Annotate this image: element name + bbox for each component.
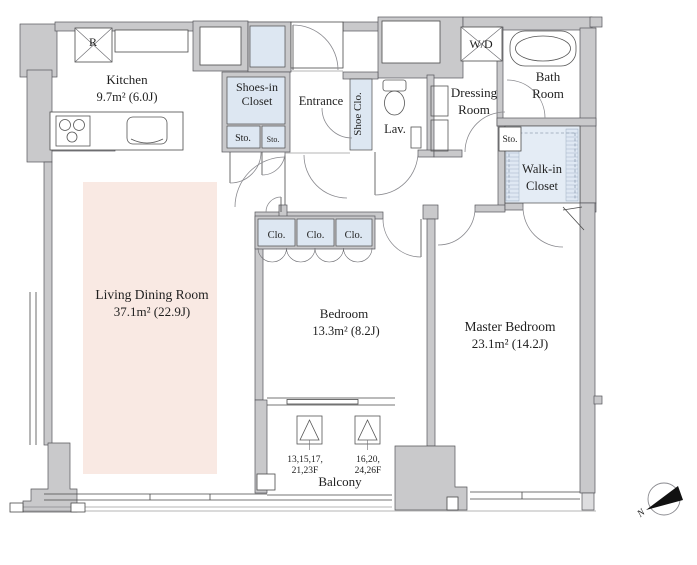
kitchen-label: Kitchen <box>106 72 148 87</box>
hatch-floors-label: 16,20, <box>356 455 380 465</box>
hatch-floors-label: 13,15,17, <box>287 455 323 465</box>
storage-label: Sto. <box>267 135 280 144</box>
storage-label: Sto. <box>235 133 251 144</box>
kitchen-cabinet <box>115 30 188 52</box>
pipe-shaft <box>382 21 440 63</box>
walk-in-closet-label: Closet <box>526 179 558 193</box>
floor-plan-page: N R Kitchen 9.7m² (6.0J) Shoes-in Closet… <box>0 0 697 565</box>
floor-plan: N R Kitchen 9.7m² (6.0J) Shoes-in Closet… <box>0 0 697 565</box>
washer-dryer-label: W/D <box>469 37 493 51</box>
living-dining-label: Living Dining Room <box>95 287 209 302</box>
walk-in-closet-shelf <box>566 129 578 201</box>
rail-post <box>447 497 458 510</box>
bath-label: Bath <box>536 69 561 84</box>
balcony-equipment <box>257 474 275 490</box>
bedroom-window-sash <box>287 400 358 405</box>
balcony-label: Balcony <box>318 474 362 489</box>
closet-label: Clo. <box>345 230 363 241</box>
rail-post <box>71 503 85 512</box>
closet-label: Clo. <box>307 230 325 241</box>
storage-top <box>250 26 285 67</box>
bedroom-label: Bedroom <box>320 306 368 321</box>
living-dining-floor-highlight <box>83 182 217 474</box>
dressing-label: Dressing <box>451 85 498 100</box>
bedroom-area: 13.3m² (8.2J) <box>312 324 379 338</box>
walk-in-closet-label: Walk-in <box>522 162 563 176</box>
kitchen-area: 9.7m² (6.0J) <box>96 90 157 104</box>
lavatory-label: Lav. <box>384 122 406 136</box>
master-bedroom-label: Master Bedroom <box>464 319 556 334</box>
shoes-in-closet-label: Shoes-in <box>236 80 278 94</box>
refrigerator-label: R <box>89 35 97 49</box>
hatch-floors-label: 21,23F <box>292 466 319 476</box>
entry-alcove <box>291 22 343 68</box>
entrance-label: Entrance <box>299 94 344 108</box>
kitchen-counter <box>50 112 183 150</box>
dressing-label: Room <box>458 102 490 117</box>
storage-label: Sto. <box>502 135 517 145</box>
master-bedroom-area: 23.1m² (14.2J) <box>472 336 548 351</box>
pipe-shaft <box>200 27 241 65</box>
bath-label: Room <box>532 86 564 101</box>
shoe-closet-label: Shoe Clo. <box>352 92 364 136</box>
shoes-in-closet-label: Closet <box>242 94 273 108</box>
rail-post <box>10 503 23 512</box>
living-dining-area: 37.1m² (22.9J) <box>114 304 190 319</box>
closet-label: Clo. <box>268 230 286 241</box>
